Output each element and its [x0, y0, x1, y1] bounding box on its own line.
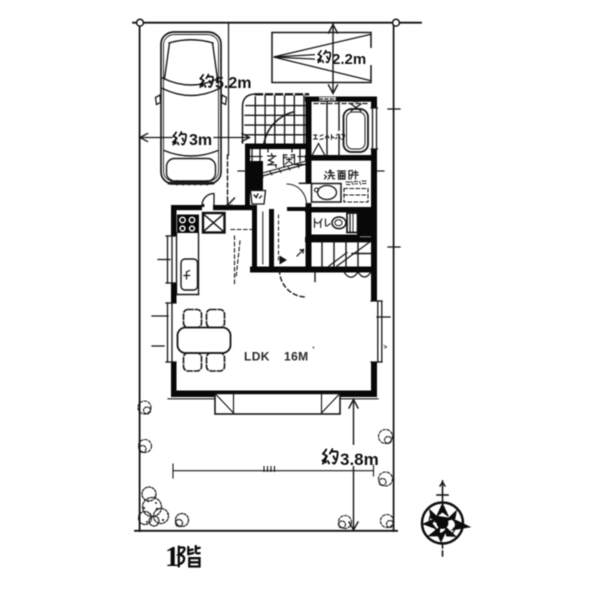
svg-text:3.8m: 3.8m [340, 450, 379, 469]
svg-text:1: 1 [165, 541, 180, 573]
svg-text:LDK: LDK [244, 350, 270, 364]
svg-text:5.2m: 5.2m [215, 75, 251, 92]
svg-text:2.2m: 2.2m [332, 51, 366, 68]
svg-text:3m: 3m [189, 132, 212, 149]
svg-text:16M: 16M [284, 350, 309, 364]
